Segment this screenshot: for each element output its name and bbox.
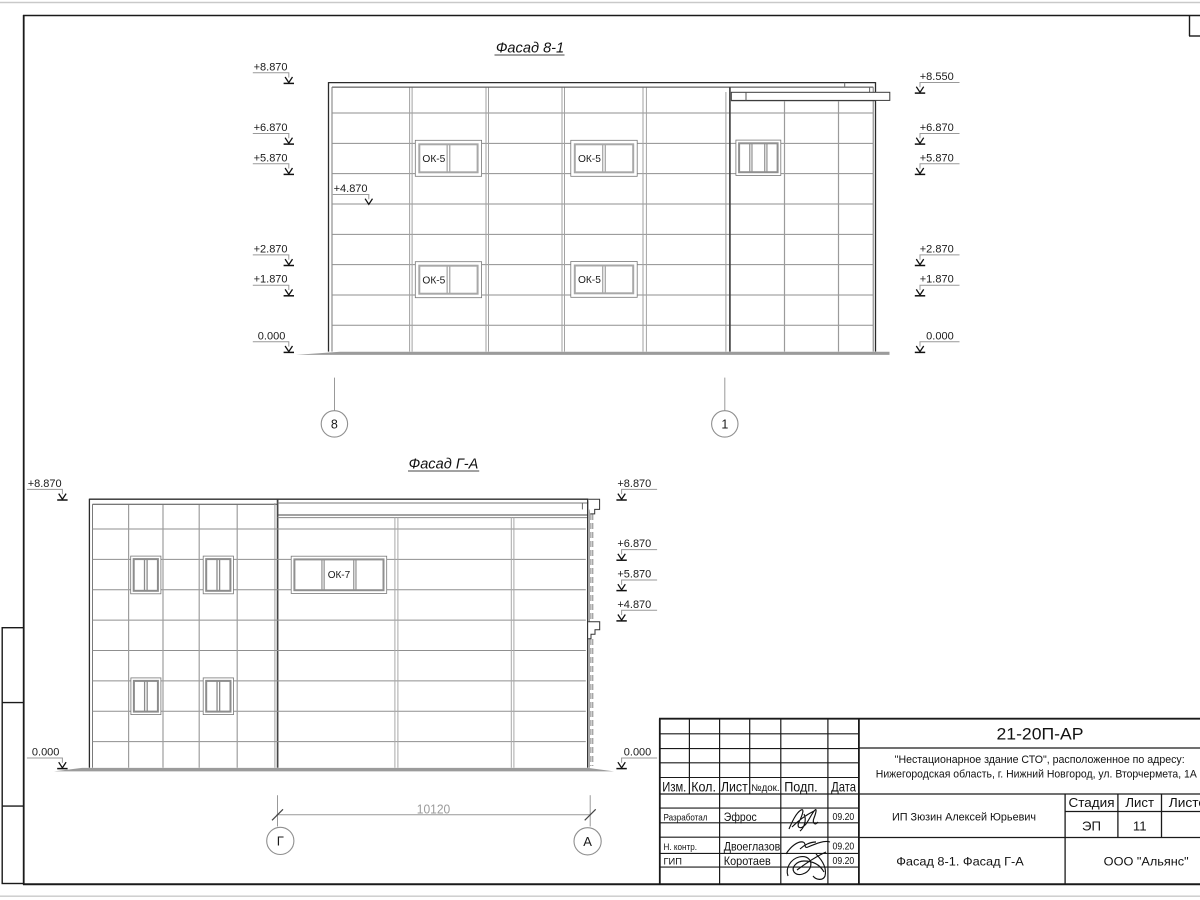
svg-text:Лист: Лист [1125,795,1154,810]
svg-text:0.000: 0.000 [624,747,652,759]
svg-text:+8.870: +8.870 [254,61,288,73]
svg-text:Изм.: Изм. [662,779,686,795]
svg-text:А: А [583,834,592,849]
svg-text:Подп.: Подп. [784,779,818,795]
svg-text:+4.870: +4.870 [617,599,651,611]
svg-text:ЭП: ЭП [1082,818,1101,833]
svg-text:+1.870: +1.870 [254,274,288,286]
svg-text:ОК-7: ОК-7 [328,570,351,581]
svg-text:+5.870: +5.870 [617,569,651,581]
svg-text:Кол.: Кол. [691,779,716,795]
svg-text:+6.870: +6.870 [617,538,651,550]
svg-text:0.000: 0.000 [926,330,954,342]
svg-text:Лист: Лист [721,779,748,795]
svg-text:Нижегородская область, г. Нижн: Нижегородская область, г. Нижний Новгоро… [876,768,1198,780]
svg-text:Фасад 8-1. Фасад Г-А: Фасад 8-1. Фасад Г-А [896,854,1024,868]
svg-text:+8.550: +8.550 [920,71,954,83]
svg-text:Двоеглазов: Двоеглазов [724,840,781,854]
svg-text:Н. контр.: Н. контр. [664,842,698,852]
svg-text:0.000: 0.000 [258,330,286,342]
svg-text:+2.870: +2.870 [920,243,954,255]
svg-text:09.20: 09.20 [833,856,855,867]
svg-text:21-20П-АР: 21-20П-АР [997,726,1084,744]
svg-text:ОК-5: ОК-5 [578,154,601,165]
svg-text:09.20: 09.20 [833,841,855,852]
svg-text:09.20: 09.20 [833,812,855,823]
svg-text:+6.870: +6.870 [254,122,288,134]
svg-text:10120: 10120 [417,802,451,817]
svg-text:+8.870: +8.870 [28,478,62,490]
svg-text:Эфрос: Эфрос [724,810,757,824]
svg-text:Фасад 8-1: Фасад 8-1 [496,40,564,56]
svg-text:+8.870: +8.870 [617,478,651,490]
svg-text:ОК-5: ОК-5 [422,275,445,286]
svg-text:Стадия: Стадия [1069,795,1115,810]
svg-text:ОК-5: ОК-5 [578,275,601,286]
svg-text:+2.870: +2.870 [254,243,288,255]
svg-text:8: 8 [331,417,338,431]
svg-text:Разработал: Разработал [664,812,708,822]
svg-text:ИП Зюзин Алексей Юрьевич: ИП Зюзин Алексей Юрьевич [892,811,1036,823]
svg-text:ГИП: ГИП [664,857,682,867]
svg-text:ООО "Альянс": ООО "Альянс" [1104,854,1189,868]
svg-text:+6.870: +6.870 [920,122,954,134]
svg-text:+1.870: +1.870 [920,274,954,286]
svg-text:+5.870: +5.870 [254,152,288,164]
svg-text:ОК-5: ОК-5 [422,154,445,165]
svg-text:Дата: Дата [831,779,856,795]
svg-text:+4.870: +4.870 [334,183,368,195]
svg-text:11: 11 [1133,818,1147,833]
svg-text:0.000: 0.000 [32,747,60,759]
svg-text:"Нестационарное здание СТО", р: "Нестационарное здание СТО", расположенн… [895,754,1185,766]
svg-text:Листов: Листов [1169,795,1200,810]
svg-text:Г: Г [277,834,284,849]
svg-text:Коротаев: Коротаев [724,854,771,868]
svg-text:+5.870: +5.870 [920,152,954,164]
svg-text:Фасад Г-А: Фасад Г-А [409,456,479,472]
svg-text:№док.: №док. [751,783,779,794]
svg-text:1: 1 [721,417,728,431]
